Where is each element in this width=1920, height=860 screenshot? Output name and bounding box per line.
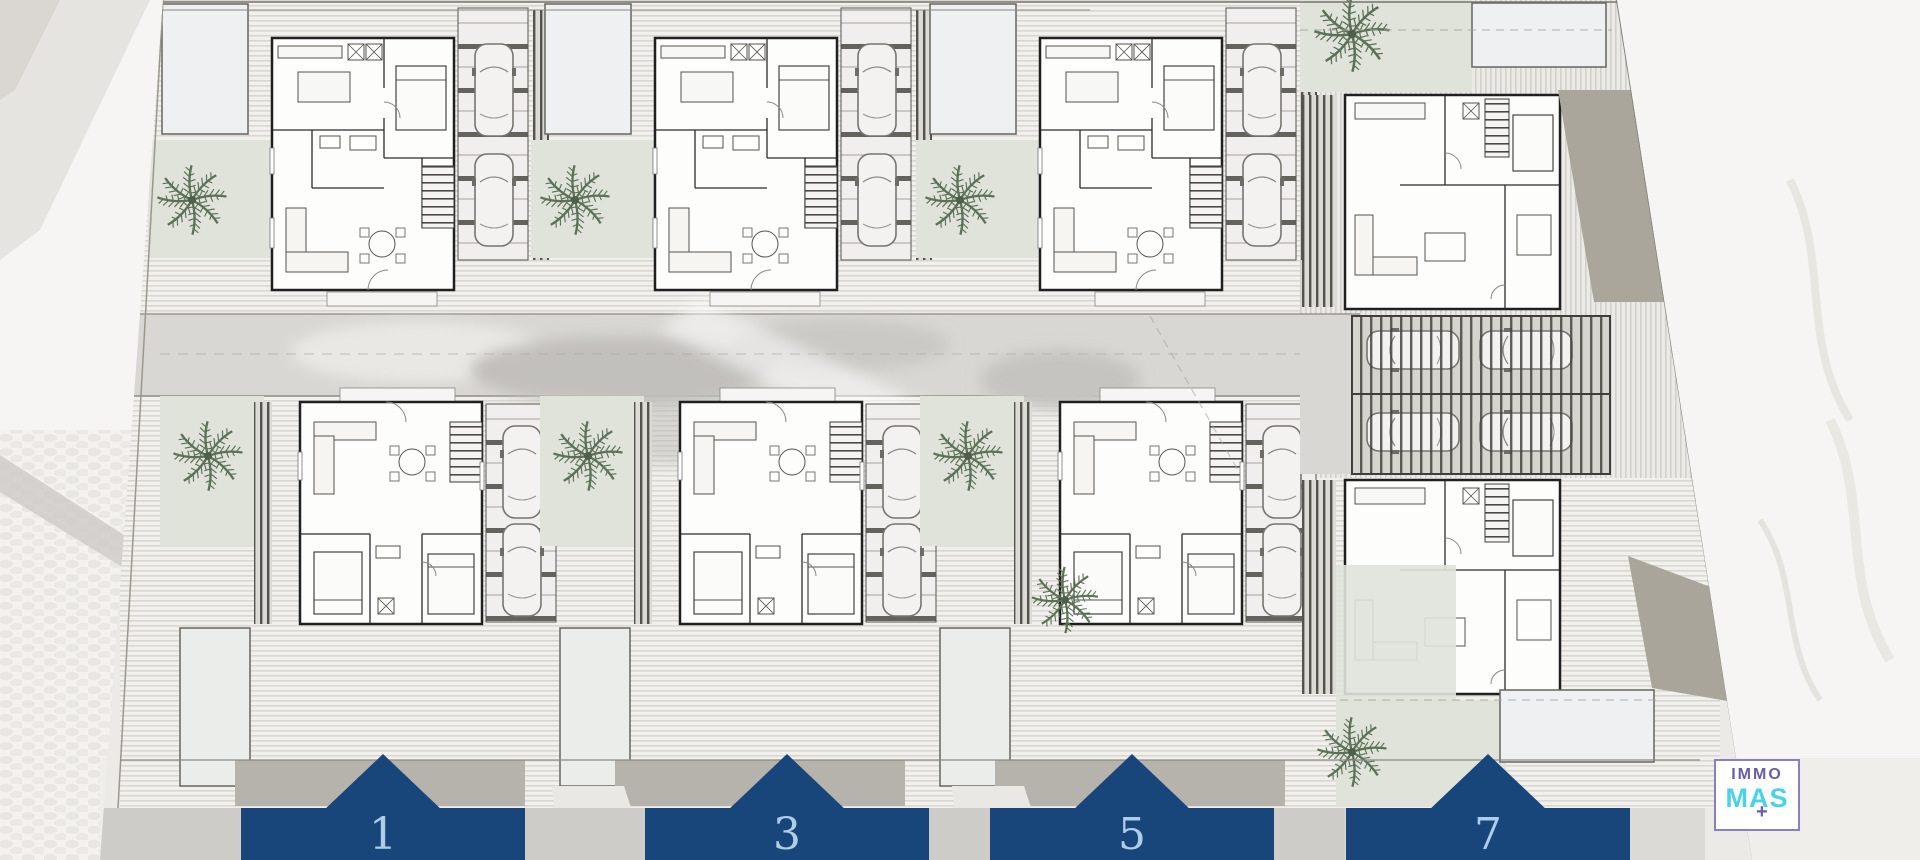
logo-line-immo: IMMO <box>1716 766 1798 784</box>
unit-number: 5 <box>990 808 1274 860</box>
unit-number: 3 <box>645 808 929 860</box>
site-plan-image: 1 3 5 7 IMMO MAS + <box>0 0 1920 860</box>
site-plan-drawing <box>0 0 1920 860</box>
parking-pergola <box>1352 316 1610 474</box>
pool <box>1472 3 1606 67</box>
pool <box>1500 690 1654 762</box>
unit-number: 1 <box>241 808 525 860</box>
logo-plus-icon: + <box>1756 801 1768 824</box>
corner-villa-floorplan-top <box>1345 95 1560 309</box>
immomas-logo: IMMO MAS + <box>1714 759 1800 831</box>
unit-number: 7 <box>1346 808 1630 860</box>
